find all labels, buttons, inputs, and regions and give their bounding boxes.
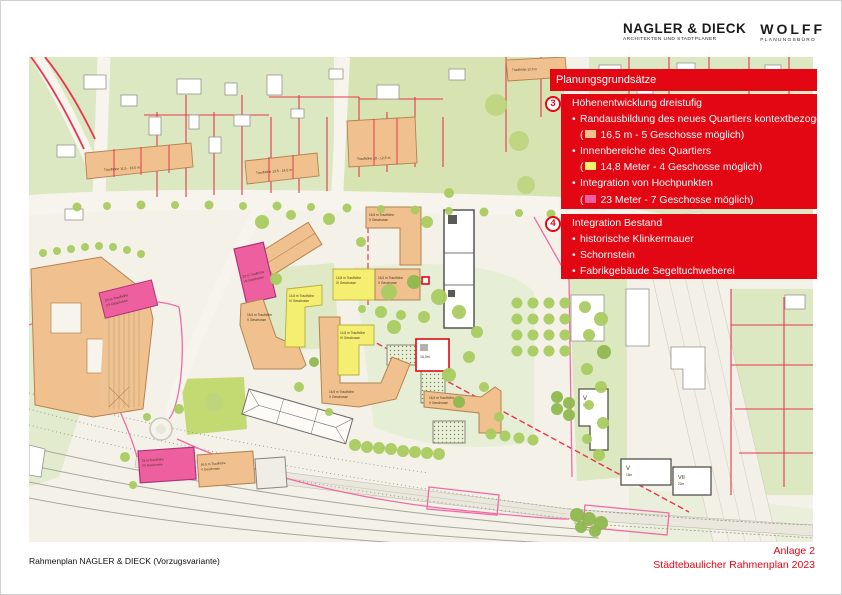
- schornstein-marker: [422, 277, 429, 284]
- orange-swatch: [585, 130, 596, 138]
- yellow-swatch: [585, 162, 596, 170]
- logo-nagler-dieck: NAGLER & DIECK ARCHITEKTEN UND STADTPLAN…: [623, 21, 746, 42]
- plan-title: Städtebaulicher Rahmenplan 2023: [653, 558, 815, 572]
- tower-v-south: [621, 459, 671, 485]
- legend-title-box: Planungsgrundsätze: [550, 69, 817, 91]
- svg-text:IV Geschosse: IV Geschosse: [340, 336, 360, 340]
- pink-swatch: [585, 195, 596, 203]
- legend-box-bestand: Integration Bestand •historische Klinker…: [561, 214, 817, 279]
- svg-text:16,5 m Traufhöhe: 16,5 m Traufhöhe: [369, 213, 394, 217]
- tower-vii: [673, 467, 711, 495]
- legend-number-4: 4: [545, 216, 561, 232]
- svg-text:14,8 m Traufhöhe: 14,8 m Traufhöhe: [289, 294, 314, 298]
- svg-text:IV Geschosse: IV Geschosse: [336, 281, 356, 285]
- svg-text:V Geschosse: V Geschosse: [429, 401, 448, 405]
- legend-item: •Schornstein: [572, 248, 813, 264]
- legend-heading-4: Integration Bestand: [572, 216, 813, 232]
- svg-text:VII: VII: [678, 475, 685, 481]
- svg-text:14,8 m Traufhöhe: 14,8 m Traufhöhe: [336, 276, 361, 280]
- svg-text:16,5 m Traufhöhe: 16,5 m Traufhöhe: [329, 390, 354, 394]
- legend-item: •Randausbildung des neues Quartiers kont…: [572, 112, 813, 128]
- legend-item: •Integration von Hochpunkten: [572, 176, 813, 192]
- svg-text:22m: 22m: [678, 482, 685, 486]
- legend-heading-3: Höhenentwicklung dreistufig: [572, 96, 813, 112]
- legend-number-3: 3: [545, 96, 561, 112]
- logo-wolff: WOLFF PLANUNGSBÜRO: [760, 21, 825, 43]
- plan-sheet: NAGLER & DIECK ARCHITEKTEN UND STADTPLAN…: [0, 0, 842, 595]
- svg-text:14,8 m Traufhöhe: 14,8 m Traufhöhe: [340, 331, 365, 335]
- svg-text:IV Geschosse: IV Geschosse: [289, 299, 309, 303]
- svg-text:V: V: [626, 466, 630, 472]
- plan-caption: Rahmenplan NAGLER & DIECK (Vorzugsvarian…: [29, 556, 220, 566]
- svg-text:V Geschosse: V Geschosse: [247, 318, 266, 322]
- roundabout: [150, 418, 172, 440]
- svg-text:V Geschosse: V Geschosse: [369, 218, 388, 222]
- firm2-name: WOLFF: [760, 21, 825, 37]
- legend-item-pink: (23 Meter - 7 Geschosse möglich): [580, 193, 813, 209]
- svg-text:16,5 m Traufhöhe: 16,5 m Traufhöhe: [378, 276, 403, 280]
- svg-text:16m: 16m: [626, 473, 633, 477]
- firm2-subtitle: PLANUNGSBÜRO: [760, 38, 825, 43]
- legend-item: •historische Klinkermauer: [572, 232, 813, 248]
- legend-item-yellow: (14,8 Meter - 4 Geschosse möglich): [580, 160, 813, 176]
- header-logos: NAGLER & DIECK ARCHITEKTEN UND STADTPLAN…: [623, 21, 825, 43]
- svg-text:16,5m: 16,5m: [420, 355, 430, 359]
- legend-item-orange: (16,5 m - 5 Geschosse möglich): [580, 128, 813, 144]
- legend-item: •Innenbereiche des Quartiers: [572, 144, 813, 160]
- attachment-number: Anlage 2: [653, 544, 815, 558]
- svg-text:V Geschosse: V Geschosse: [329, 395, 348, 399]
- legend-box-heights: Höhenentwicklung dreistufig •Randausbild…: [561, 94, 817, 209]
- legend-item: •Fabrikgebäude Segeltuchweberei: [572, 264, 813, 280]
- highpoint-tower-south: 23 m Traufhöhe VII Geschosse: [138, 447, 196, 483]
- attachment-label: Anlage 2 Städtebaulicher Rahmenplan 2023: [653, 544, 815, 572]
- firm1-subtitle: ARCHITEKTEN UND STADTPLANER: [623, 37, 746, 42]
- svg-text:16,5 m Traufhöhe: 16,5 m Traufhöhe: [247, 313, 272, 317]
- svg-text:16,5 m Traufhöhe: 16,5 m Traufhöhe: [429, 396, 454, 400]
- legend-title: Planungsgrundsätze: [556, 74, 656, 86]
- orange-block-station: 16,5 m Traufhöhe V Geschosse: [197, 451, 255, 487]
- firm1-name: NAGLER & DIECK: [623, 21, 746, 36]
